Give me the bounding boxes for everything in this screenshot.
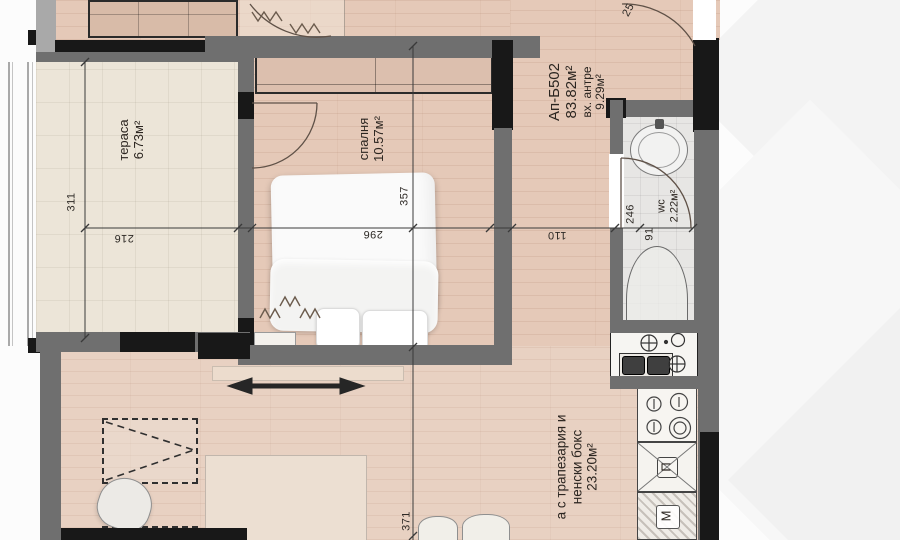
dim-corridor-width: 110 <box>547 229 566 241</box>
sink-basin-inner <box>638 132 680 168</box>
basin-left <box>622 356 645 375</box>
wall <box>205 36 540 58</box>
bed <box>268 172 440 352</box>
living-name-line2: ненски бокс <box>569 415 585 520</box>
wall <box>494 128 512 352</box>
living-name-line1: а с трапезария и <box>554 415 570 520</box>
wall <box>238 345 512 365</box>
terrace-railing-line <box>32 62 33 346</box>
bedroom-label: спалня 10.57м² <box>357 116 387 162</box>
dim-terrace-height: 311 <box>66 192 79 211</box>
wall <box>610 376 700 389</box>
bedroom-area: 10.57м² <box>372 116 387 162</box>
terrace-railing-line <box>12 62 13 346</box>
wc-door-opening <box>609 154 624 228</box>
wall <box>198 333 250 359</box>
dim-bedroom-width: 296 <box>363 228 383 240</box>
unit-label: Ап-Б502 83.82м² вх. антре 9.29м² <box>546 63 608 121</box>
dim-wc-door: 91 <box>644 227 657 240</box>
unit-id: Ап-Б502 <box>546 63 563 121</box>
terrace-label: тераса 6.73м² <box>117 119 147 160</box>
tv-console <box>212 366 404 381</box>
dim-terrace-width: 216 <box>114 232 134 244</box>
wall <box>120 332 195 352</box>
living-area: 23.20м² <box>585 415 601 520</box>
dishwasher-letter: П <box>660 462 675 471</box>
kitchen-sink-counter <box>610 330 698 378</box>
floorplan-canvas: тераса 6.73м² спалня 10.57м² Ап-Б502 83.… <box>0 0 900 540</box>
terrace-name: тераса <box>117 119 132 160</box>
wall <box>61 528 247 540</box>
dim-living-height: 371 <box>401 511 414 531</box>
wall <box>610 320 698 333</box>
entry-hall-name: вх. антре <box>580 63 594 121</box>
bedroom-name: спалня <box>357 116 372 162</box>
wall <box>40 346 61 540</box>
dining-chair <box>418 516 458 540</box>
unit-total-area: 83.82м² <box>563 63 580 121</box>
wall <box>694 130 719 332</box>
basin-right <box>647 356 670 375</box>
wall <box>492 40 513 130</box>
wall <box>700 432 719 540</box>
dim-bedroom-height: 357 <box>399 186 412 206</box>
dining-chair <box>462 514 510 540</box>
terrace-area: 6.73м² <box>132 119 147 160</box>
sink-double-basin <box>619 353 673 377</box>
dim-wc-depth: 246 <box>625 204 638 224</box>
stove <box>637 388 697 442</box>
terrace-railing-line <box>8 62 10 346</box>
wall <box>693 38 719 132</box>
adjacent-wardrobe <box>88 0 238 38</box>
wc-name: wc <box>655 190 668 223</box>
wc-area: 2.22м² <box>668 190 681 223</box>
sink-faucet <box>655 119 664 129</box>
wall <box>36 52 242 62</box>
wc-label: wc 2.22м² <box>655 190 680 223</box>
wall <box>36 0 56 60</box>
wall <box>238 92 254 119</box>
bed-pillow-left <box>316 308 360 350</box>
terrace-railing-line <box>27 62 29 346</box>
living-room-label: а с трапезария и ненски бокс 23.20м² <box>554 415 601 520</box>
entry-hall-area: 9.29м² <box>594 63 608 121</box>
entrance-door-opening <box>693 0 716 40</box>
washer-letter: М <box>660 511 675 522</box>
sofa-foldout-outline <box>102 418 198 484</box>
floor-corridor <box>510 100 612 348</box>
closet-area <box>240 0 345 36</box>
